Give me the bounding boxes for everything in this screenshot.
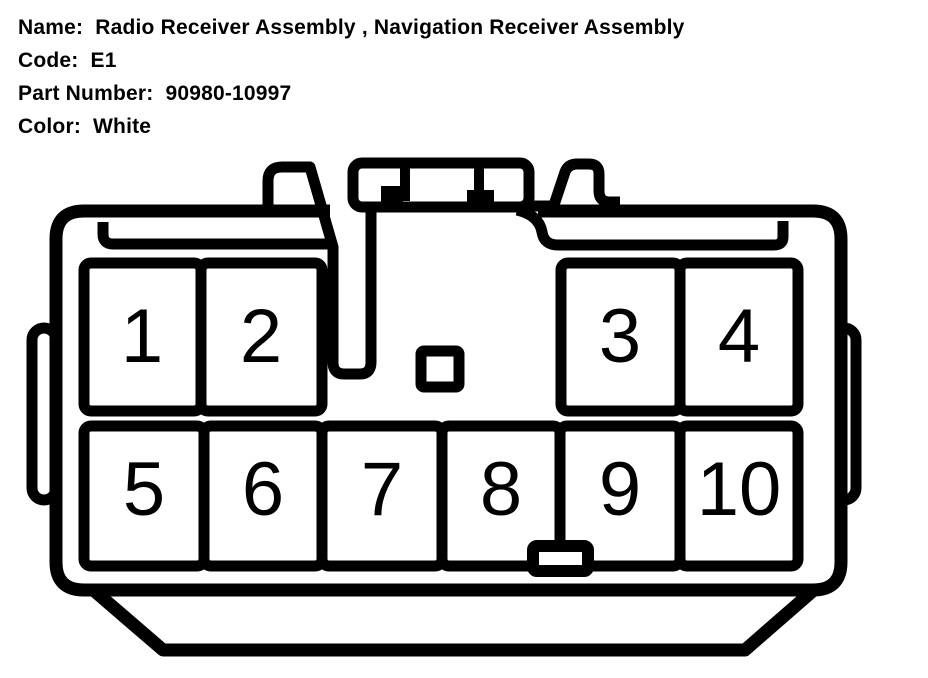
pin-number-8: 8 xyxy=(480,447,522,532)
pin-number-5: 5 xyxy=(123,447,165,532)
pin-cell-7: 7 xyxy=(322,426,442,566)
bottom-key-tab xyxy=(533,546,588,571)
latch-housing xyxy=(353,163,529,207)
pin-cell-3: 3 xyxy=(561,263,680,411)
right-guide-rib xyxy=(552,164,620,211)
latch-outline xyxy=(353,163,529,207)
pin-number-3: 3 xyxy=(599,294,641,379)
pin-cell-5: 5 xyxy=(84,426,204,566)
pin-number-4: 4 xyxy=(718,294,760,379)
pin-number-9: 9 xyxy=(599,447,641,532)
pin-cell-1: 1 xyxy=(84,263,201,411)
pin-number-6: 6 xyxy=(242,447,284,532)
pin-number-10: 10 xyxy=(697,447,782,532)
pin-row-bottom: 5 6 7 8 9 10 xyxy=(84,426,798,566)
polarization-key-square xyxy=(421,351,459,387)
connector-diagram: 1 2 3 4 5 6 xyxy=(0,0,928,678)
pin-number-2: 2 xyxy=(240,294,282,379)
pin-number-1: 1 xyxy=(121,294,163,379)
pin-cell-6: 6 xyxy=(204,426,322,566)
pin-cell-2: 2 xyxy=(201,263,322,411)
latch-rib-1-foot xyxy=(381,186,403,203)
connector-pinout-page: Name: Radio Receiver Assembly , Navigati… xyxy=(0,0,928,678)
pin-number-7: 7 xyxy=(361,447,403,532)
latch-rib-2-foot xyxy=(467,190,494,203)
pin-cell-10: 10 xyxy=(680,426,798,566)
pin-cell-4: 4 xyxy=(680,263,798,411)
